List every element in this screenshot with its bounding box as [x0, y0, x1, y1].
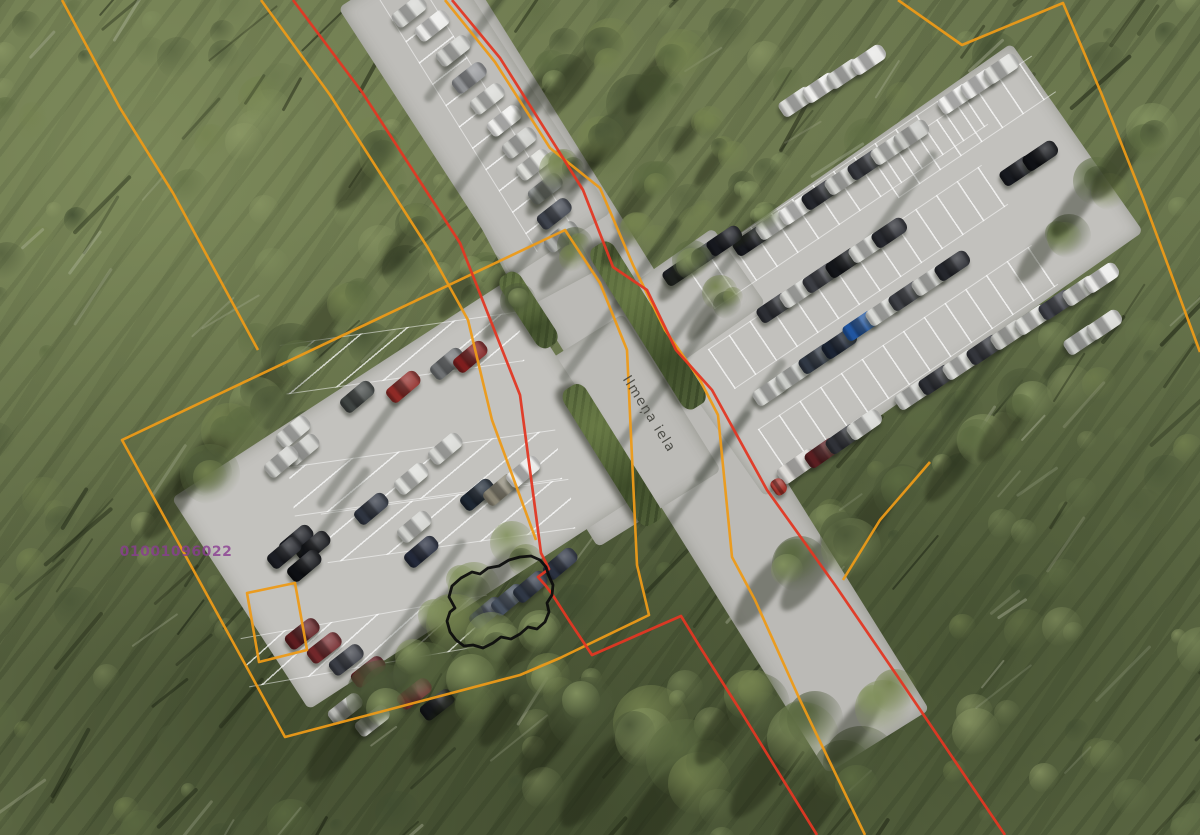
aerial-map[interactable]: Ilmeņa iela 01001096022 [0, 0, 1200, 835]
cadastral-number-label: 01001096022 [120, 544, 233, 560]
cadastral-boundary-overlay [0, 0, 1200, 835]
